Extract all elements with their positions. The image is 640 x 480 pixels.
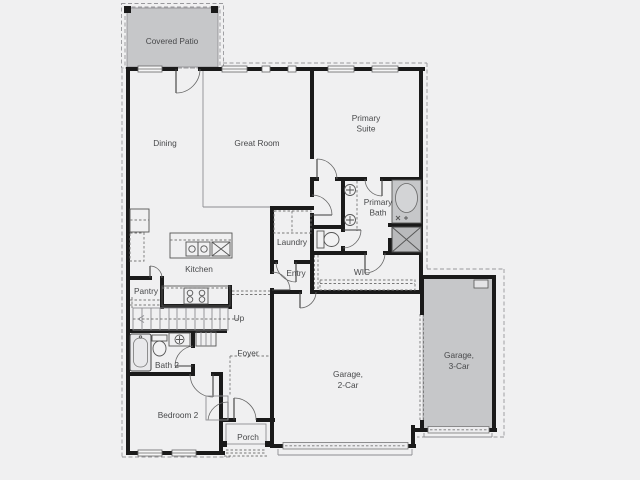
- stairs-up-label: Up: [234, 313, 245, 323]
- room-label-garage-3-car-1: Garage,: [444, 350, 474, 360]
- room-label-garage-2-car-1: Garage,: [333, 369, 363, 379]
- room-label-garage-3-car-2: 3-Car: [449, 361, 470, 371]
- room-label-dining: Dining: [153, 138, 177, 148]
- room-label-primary-suite-2: Suite: [357, 124, 376, 134]
- room-label-wic: WIC: [354, 267, 370, 277]
- room-label-bedroom-2: Bedroom 2: [158, 410, 199, 420]
- floor-plan-svg: Covered Patio Dining Great Room Primary …: [0, 0, 640, 480]
- water-heater-icon: [474, 280, 488, 288]
- shower-icon: [392, 227, 421, 252]
- bath2-tub-icon: [130, 334, 151, 371]
- patio-post-left: [124, 6, 131, 13]
- room-label-garage-2-car-2: 2-Car: [338, 380, 359, 390]
- patio-post-right: [211, 6, 218, 13]
- room-label-great-room: Great Room: [234, 138, 279, 148]
- room-label-covered-patio: Covered Patio: [146, 36, 199, 46]
- plan-background: [0, 0, 640, 480]
- room-label-primary-bath-1: Primary: [364, 197, 393, 207]
- room-label-pantry: Pantry: [134, 286, 159, 296]
- room-label-bath-2: Bath 2: [155, 360, 179, 370]
- room-label-primary-suite-1: Primary: [352, 113, 381, 123]
- room-label-laundry: Laundry: [277, 237, 308, 247]
- floor-plan: Covered Patio Dining Great Room Primary …: [0, 0, 640, 480]
- room-label-primary-bath-2: Bath: [369, 208, 386, 218]
- room-label-kitchen: Kitchen: [185, 264, 213, 274]
- bathtub-icon: [392, 180, 421, 223]
- room-label-porch: Porch: [237, 432, 259, 442]
- room-label-foyer: Foyer: [237, 348, 258, 358]
- room-label-entry: Entry: [286, 268, 306, 278]
